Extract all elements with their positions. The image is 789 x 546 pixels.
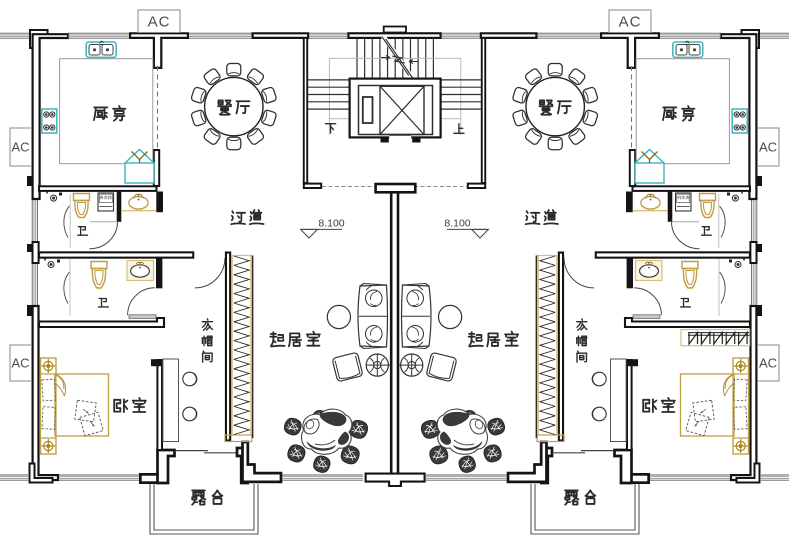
svg-text:AC: AC [759, 356, 777, 371]
svg-text:AC: AC [759, 140, 777, 155]
svg-text:AC: AC [619, 13, 642, 30]
svg-text:AC: AC [148, 13, 171, 30]
svg-text:AC: AC [11, 356, 29, 371]
svg-text:8.100: 8.100 [444, 218, 470, 230]
svg-text:AC: AC [11, 140, 29, 155]
svg-text:8.100: 8.100 [318, 218, 344, 230]
